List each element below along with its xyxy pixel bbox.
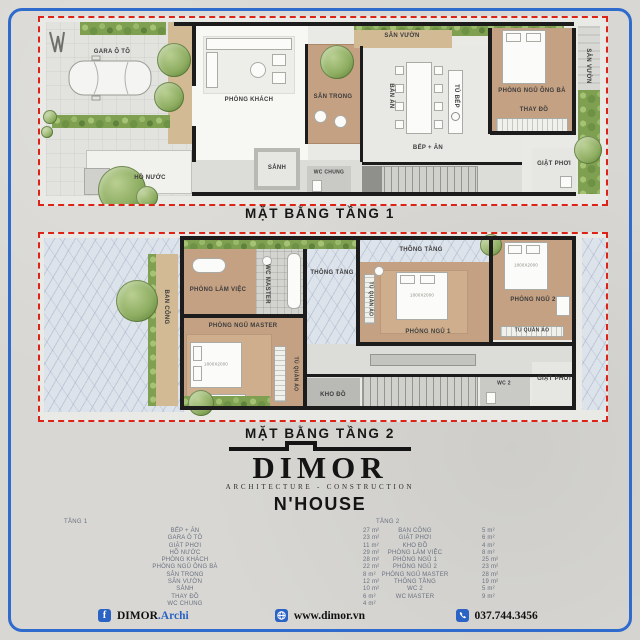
facebook-icon: f — [98, 609, 111, 622]
pillow — [526, 33, 541, 42]
room-label: PHÒNG NGỦ 1 — [405, 329, 450, 335]
room-area: 8 m² — [482, 550, 495, 556]
stair-railing — [370, 354, 476, 366]
wardrobe — [274, 346, 286, 402]
room-label: PHÒNG NGỦ 2 — [510, 297, 555, 303]
armchair — [272, 72, 286, 84]
facebook-handle: DIMOR.Archi — [117, 610, 189, 622]
room-name: SÂN TRONG — [100, 572, 270, 578]
room-label: TỦ QUẦN ÁO — [368, 282, 373, 317]
facebook-contact: f DIMOR.Archi — [55, 609, 232, 622]
bush — [43, 110, 57, 124]
room-label: PHÒNG KHÁCH — [225, 97, 274, 103]
wall — [362, 162, 522, 165]
tree — [136, 186, 158, 206]
tree — [157, 43, 191, 77]
bed-size-label: 1800X2000 — [514, 264, 538, 268]
planter-row — [52, 115, 170, 128]
room-label: TỦ BẾP — [453, 84, 459, 108]
pillow — [420, 275, 435, 284]
facebook-suffix: .Archi — [158, 610, 189, 622]
hedge — [80, 22, 166, 35]
website-contact: www.dimor.vn — [232, 609, 409, 622]
room-name: SẢNH — [100, 586, 270, 592]
room-area: 25 m² — [482, 557, 498, 563]
pillow — [193, 366, 202, 381]
table-row: PHÒNG LÀM VIỆC8 m² — [340, 550, 540, 557]
bathtub — [287, 253, 301, 309]
room-label: PHÒNG NGỦ ÔNG BÀ — [498, 88, 565, 94]
logo-tagline: ARCHITECTURE - CONSTRUCTION — [0, 483, 640, 491]
washer — [560, 176, 572, 188]
wall — [180, 406, 576, 410]
room-label: BẾP + ĂN — [413, 145, 443, 151]
pillow — [526, 245, 540, 254]
room-label: WC CHUNG — [314, 171, 344, 176]
room-name: THÔNG TẦNG — [340, 579, 490, 585]
phone-icon — [456, 609, 469, 622]
wardrobe — [496, 118, 568, 132]
room-name: PHÒNG KHÁCH — [100, 557, 270, 563]
room-label: SÂN VƯỜN — [585, 48, 591, 83]
wall — [180, 236, 576, 240]
stairs-dark — [362, 166, 382, 195]
chair — [395, 102, 404, 111]
bed-size-label: 1800X2000 — [410, 294, 434, 298]
room-name: SÂN VƯỜN — [100, 579, 270, 585]
floor2-area-table: BAN CÔNG5 m² GIẶT PHƠI6 m² KHO ĐỒ4 m² PH… — [340, 528, 540, 601]
room-name: PHÒNG NGỦ 1 — [340, 557, 490, 563]
room-label: TỦ QUẦN ÁO — [515, 329, 550, 334]
desk — [192, 258, 226, 273]
lounge-chair — [334, 115, 347, 128]
palm-tree — [574, 136, 602, 164]
chair — [434, 102, 443, 111]
dining-table — [406, 62, 432, 134]
room-label: GIẶT PHƠI — [537, 376, 571, 382]
table-row: THÔNG TẦNG19 m² — [340, 579, 540, 586]
table-row: PHÒNG NGỦ 125 m² — [340, 557, 540, 564]
table-row: GIẶT PHƠI6 m² — [340, 535, 540, 542]
coffee-table — [250, 62, 266, 78]
facebook-brand: DIMOR — [117, 610, 158, 622]
lounge-chair — [314, 110, 327, 123]
room-label: HỒ NƯỚC — [134, 175, 166, 181]
wall — [303, 249, 307, 410]
room-label: THÔNG TẦNG — [399, 247, 442, 253]
stairs — [362, 376, 478, 410]
room-name: WC 2 — [340, 586, 490, 592]
floor1-table-title: TẦNG 1 — [64, 519, 87, 525]
room-name: WC CHUNG — [100, 601, 270, 607]
globe-icon — [275, 609, 288, 622]
room-area: 4 m² — [482, 543, 495, 549]
sink — [451, 112, 460, 121]
pillow — [506, 33, 521, 42]
wall — [180, 314, 306, 318]
table-row: WC MASTER9 m² — [340, 594, 540, 601]
pillow — [400, 275, 415, 284]
room-label: SẢNH — [268, 165, 286, 171]
facebook-glyph: f — [103, 610, 106, 621]
sofa — [206, 38, 292, 50]
chair — [434, 66, 443, 75]
bed-size-label: 1800X2000 — [204, 363, 228, 367]
floor2-plan: BAN CÔNG PHÒNG LÀM VIỆC WC MASTER PHÒNG … — [38, 232, 608, 422]
room-name: WC MASTER — [340, 594, 490, 600]
toilet — [486, 392, 496, 404]
room-label: GARA Ô TÔ — [94, 49, 130, 55]
room-area: 4 m² — [363, 601, 376, 607]
room-area: 9 m² — [482, 594, 495, 600]
wall — [305, 44, 308, 144]
wall — [307, 374, 576, 377]
room-label: KHO ĐỒ — [320, 392, 346, 398]
room-name: BẾP + ĂN — [100, 528, 270, 534]
room-name: HỒ NƯỚC — [100, 550, 270, 556]
floor2-title: MẶT BẰNG TẦNG 2 — [0, 426, 640, 441]
room-name: PHÒNG NGỦ MASTER — [340, 572, 490, 578]
room-label: WC MASTER — [264, 264, 270, 304]
room-area: 5 m² — [482, 528, 495, 534]
wall — [192, 126, 196, 162]
open-void-area — [582, 238, 606, 410]
table-row: KHO ĐỒ4 m² — [340, 543, 540, 550]
wall — [488, 28, 492, 134]
room-label: WC 2 — [497, 382, 511, 387]
room-label: BÀN ĂN — [388, 83, 394, 108]
wall — [180, 236, 184, 410]
pillow — [193, 346, 202, 361]
chair — [434, 120, 443, 129]
room-area: 28 m² — [482, 572, 498, 578]
wall — [360, 46, 363, 162]
website-url: www.dimor.vn — [294, 610, 365, 622]
floor2-table-title: TẦNG 2 — [376, 519, 399, 525]
phone-number: 037.744.3456 — [475, 610, 538, 622]
wall — [174, 22, 574, 26]
room-name: KHO ĐỒ — [340, 543, 490, 549]
room-label: GIẶT PHƠI — [537, 161, 571, 167]
room-name: GIẶT PHƠI — [340, 535, 490, 541]
room-area: 19 m² — [482, 579, 498, 585]
tree — [320, 45, 354, 79]
chair — [434, 84, 443, 93]
room-name: BAN CÔNG — [340, 528, 490, 534]
room-name: GIẶT PHƠI — [100, 543, 270, 549]
table-row: WC CHUNG4 m² — [100, 601, 410, 608]
sofa — [206, 52, 218, 88]
room-name: GARA Ô TÔ — [100, 535, 270, 541]
room-label: PHÒNG LÀM VIỆC — [190, 287, 247, 293]
palm-tree — [188, 390, 214, 416]
room-name: PHÒNG NGỦ 2 — [340, 564, 490, 570]
gate-zigzag-icon — [48, 30, 66, 54]
room-area: 5 m² — [482, 586, 495, 592]
tree — [154, 82, 184, 112]
wall — [489, 240, 493, 346]
chair — [395, 120, 404, 129]
wall — [490, 131, 576, 135]
poster-page: GARA Ô TÔ HỒ NƯỚC PHÒNG KHÁCH SẢNH WC CH… — [0, 0, 640, 640]
desk — [556, 296, 570, 316]
table-row: BAN CÔNG5 m² — [340, 528, 540, 535]
chair — [374, 266, 384, 276]
toilet — [312, 180, 322, 192]
room-label: SÂN TRONG — [314, 94, 353, 100]
room-name: PHÒNG LÀM VIỆC — [340, 550, 490, 556]
contact-footer: f DIMOR.Archi www.dimor.vn 037.744.3456 — [55, 609, 585, 622]
tree — [116, 280, 158, 322]
room-name: THAY ĐỒ — [100, 594, 270, 600]
wall — [192, 26, 196, 86]
balcony-planter — [148, 254, 156, 406]
room-name: PHÒNG NGỦ ÔNG BÀ — [100, 564, 270, 570]
project-name: N'HOUSE — [0, 494, 640, 515]
logo-block: DIMOR ARCHITECTURE - CONSTRUCTION N'HOUS… — [0, 440, 640, 515]
wall — [572, 28, 576, 134]
chair — [395, 66, 404, 75]
room-label: SÂN VƯỜN — [384, 33, 419, 39]
table-row: PHÒNG NGỦ 223 m² — [340, 564, 540, 571]
wall — [356, 240, 360, 346]
floor1-plan: GARA Ô TÔ HỒ NƯỚC PHÒNG KHÁCH SẢNH WC CH… — [38, 16, 608, 206]
table-row: WC 25 m² — [340, 586, 540, 593]
room-laundry — [532, 362, 576, 408]
car-top-view — [64, 54, 156, 102]
pillow — [508, 245, 522, 254]
room-label: PHÒNG NGỦ MASTER — [209, 323, 278, 329]
wall — [360, 342, 576, 346]
armchair — [272, 54, 286, 66]
wall — [572, 236, 576, 410]
chair — [395, 84, 404, 93]
bush — [41, 126, 53, 138]
wall — [192, 192, 576, 196]
room-label: THAY ĐỒ — [520, 107, 548, 113]
logo-brand: DIMOR — [0, 452, 640, 483]
room-area: 23 m² — [482, 564, 498, 570]
floor1-title: MẶT BẰNG TẦNG 1 — [0, 206, 640, 221]
room-area: 6 m² — [482, 535, 495, 541]
room-label: THÔNG TẦNG — [310, 270, 353, 276]
table-row: PHÒNG NGỦ MASTER28 m² — [340, 572, 540, 579]
room-label: TỦ QUẦN ÁO — [293, 357, 298, 392]
room-label: BAN CÔNG — [163, 289, 169, 324]
phone-contact: 037.744.3456 — [408, 609, 585, 622]
